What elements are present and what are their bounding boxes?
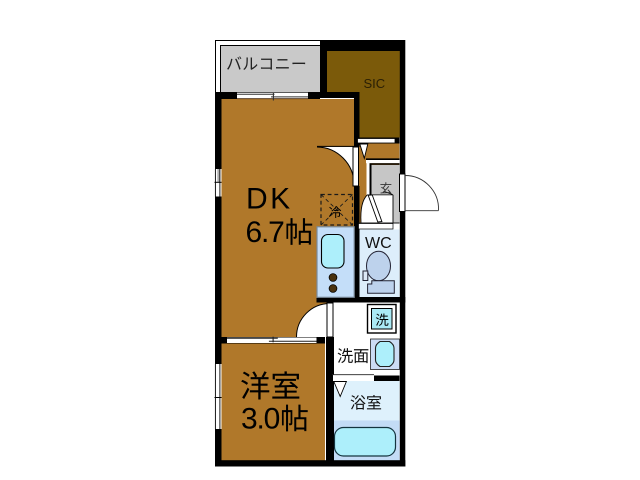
svg-text:DK: DK	[246, 183, 293, 216]
svg-text:WC: WC	[365, 235, 392, 252]
svg-text:SIC: SIC	[364, 76, 386, 91]
svg-text:3.0: 3.0	[241, 403, 280, 436]
svg-text:6.7: 6.7	[246, 216, 285, 249]
